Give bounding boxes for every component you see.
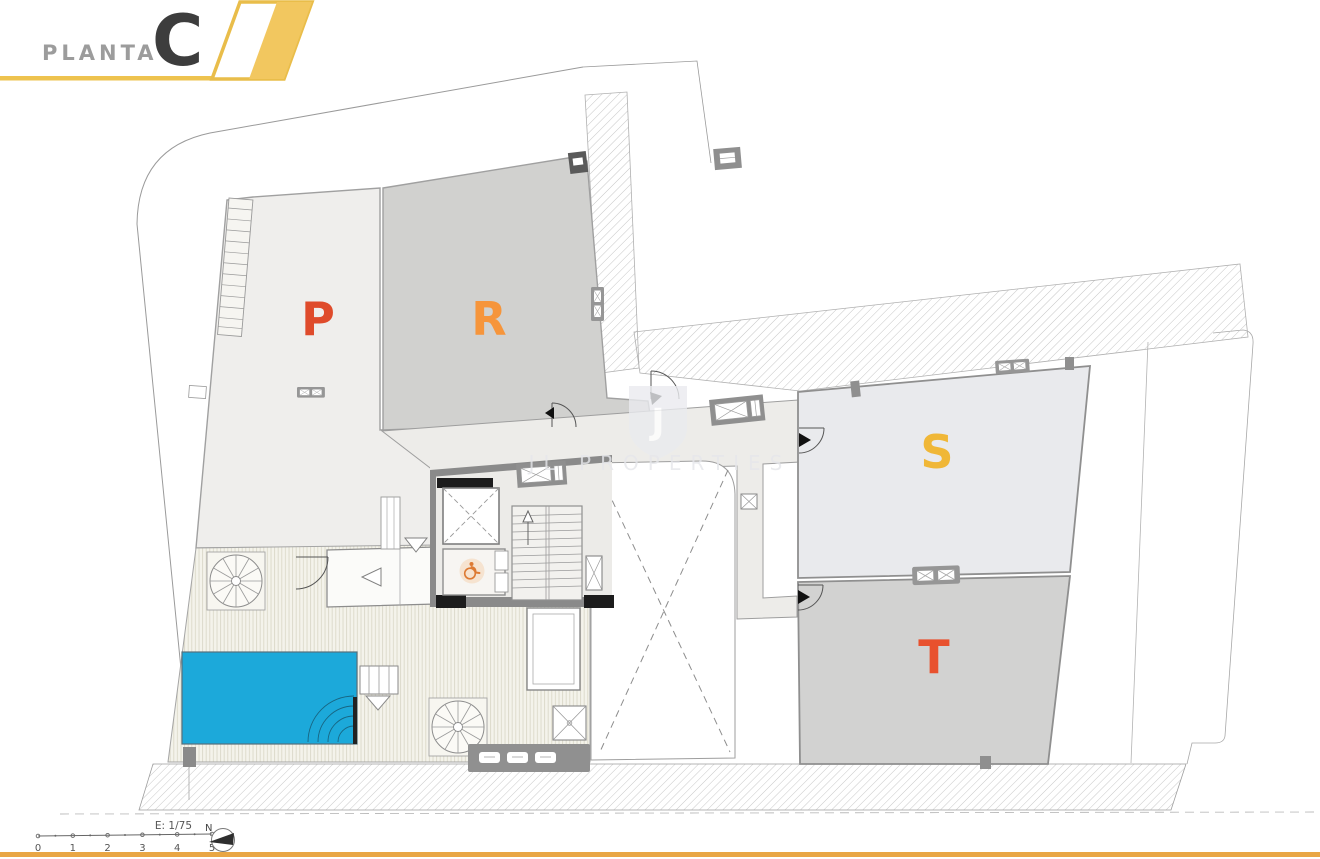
watermark-initial: J — [648, 402, 664, 443]
unit-p-label: P — [301, 292, 335, 346]
sidewalk-strip — [60, 764, 1320, 814]
elevator-shaft — [443, 488, 499, 544]
page-title: PLANTA — [42, 41, 158, 65]
header: PLANTA C — [0, 0, 312, 82]
deck-room — [327, 547, 436, 607]
pyramid-skylight — [553, 706, 586, 740]
accessible-lift — [443, 549, 508, 595]
floor-letter: C — [152, 0, 203, 82]
vent-unit-s-wall — [995, 359, 1030, 374]
vent-unit-r-wall — [591, 287, 604, 321]
vent-unit-p — [297, 387, 325, 398]
corner-pier-r — [568, 151, 588, 174]
pier-s-left — [850, 381, 861, 398]
small-shaft — [586, 556, 602, 590]
vent-s-t-divider — [912, 565, 960, 585]
elevator-wall-pier — [437, 478, 493, 488]
scale-label: E: 1/75 — [155, 820, 192, 832]
unit-s-label: S — [920, 425, 953, 479]
patio-vent-box — [741, 494, 757, 509]
neighbor-hatched-area — [585, 92, 1248, 391]
unit-r-label: R — [471, 292, 506, 346]
lobby-window — [381, 497, 400, 549]
pier-s-right — [1065, 357, 1074, 370]
patio-void — [591, 461, 735, 760]
unit-t-label: T — [918, 630, 950, 684]
floorplan-page: P R S T J JL PROPERTIES PLANTA C 0 1 — [0, 0, 1320, 859]
staircase — [512, 506, 582, 600]
scale-bar: 0 1 2 3 4 5 E: 1/75 — [35, 820, 215, 854]
north-label: N — [205, 823, 212, 834]
pier-t-bottom — [980, 756, 991, 769]
watermark-brand: JL PROPERTIES — [527, 451, 792, 475]
swimming-pool — [182, 652, 357, 744]
floorplan-canvas: P R S T J JL PROPERTIES PLANTA C 0 1 — [0, 0, 1320, 859]
skylight-box — [527, 608, 580, 690]
spiral-stair-upper — [207, 552, 265, 610]
parcel-lines-right — [1131, 330, 1253, 764]
footer-rule — [0, 852, 1320, 857]
planter-bench — [468, 744, 590, 772]
boundary-chimney — [713, 147, 742, 170]
wheelchair-icon — [460, 559, 485, 584]
